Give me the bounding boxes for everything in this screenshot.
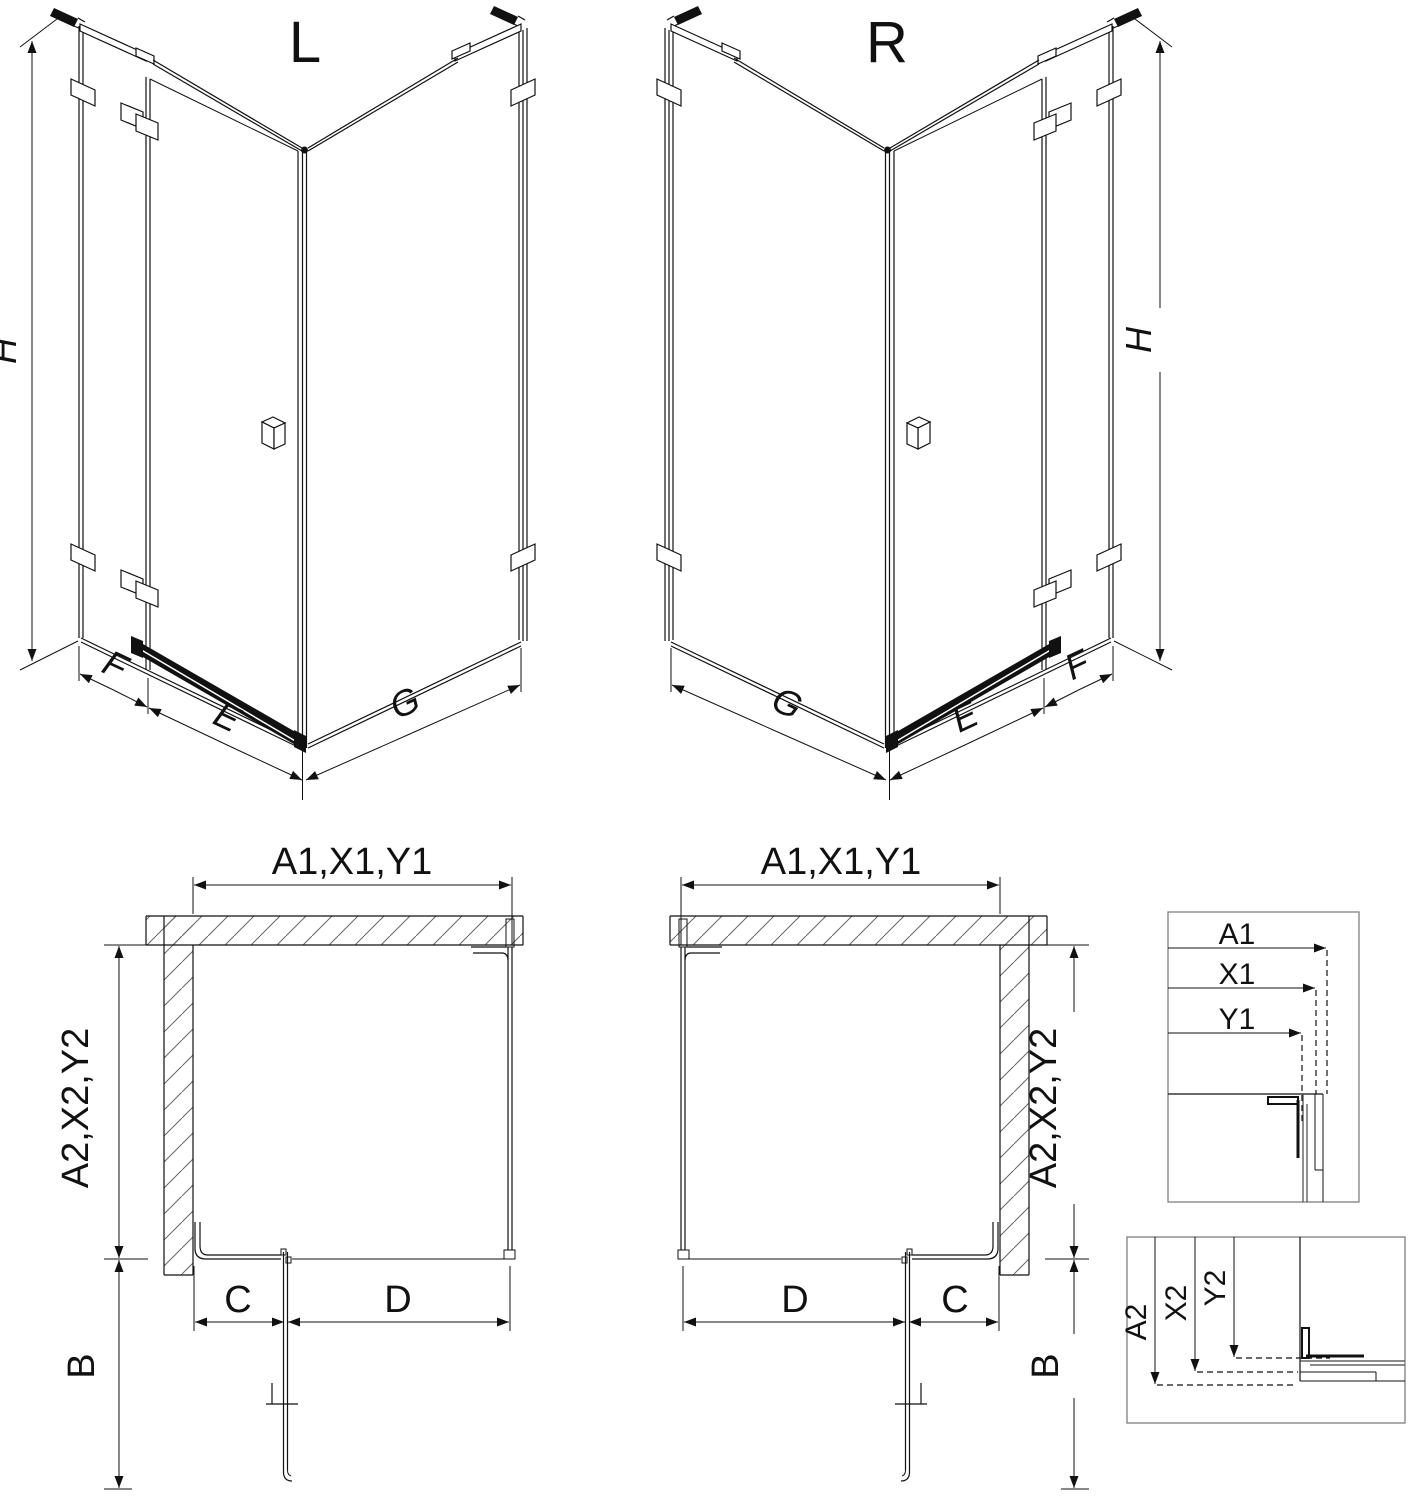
iso-right-h-label: H bbox=[1118, 326, 1159, 353]
detail-depth-dims: A2 X2 Y2 bbox=[1120, 1237, 1405, 1423]
detail-a1-label: A1 bbox=[1219, 918, 1256, 951]
iso-right-g-label: G bbox=[766, 678, 809, 727]
plan-left-width-label: A1,X1,Y1 bbox=[272, 841, 433, 883]
plan-right-d-label: D bbox=[781, 1279, 808, 1321]
shower-enclosure-drawing: L H F E G R H G E F A1,X1,Y1 A2,X2,Y2 C … bbox=[0, 0, 1416, 1497]
detail-y1-label: Y1 bbox=[1219, 1003, 1256, 1036]
detail-width-profile bbox=[1168, 1094, 1323, 1202]
detail-depth-profile bbox=[1300, 1237, 1405, 1381]
detail-width-dims: A1 X1 Y1 bbox=[1168, 912, 1359, 1202]
iso-left-h-label: H bbox=[0, 337, 24, 364]
plan-left-d-label: D bbox=[384, 1279, 411, 1321]
wall-hatching bbox=[146, 916, 1047, 1275]
technical-drawing-page: L H F E G R H G E F A1,X1,Y1 A2,X2,Y2 C … bbox=[0, 0, 1416, 1497]
plan-right-depth-label: A2,X2,Y2 bbox=[1023, 1028, 1065, 1189]
detail-y2-label: Y2 bbox=[1199, 1270, 1232, 1307]
iso-right-title: R bbox=[866, 10, 908, 75]
plan-right-c-label: C bbox=[941, 1279, 968, 1321]
plan-right-width-label: A1,X1,Y1 bbox=[761, 841, 922, 883]
detail-x1-label: X1 bbox=[1219, 958, 1256, 991]
detail-x2-label: X2 bbox=[1160, 1285, 1193, 1322]
iso-left-e-label: E bbox=[208, 693, 248, 741]
detail-a2-label: A2 bbox=[1120, 1304, 1153, 1341]
plan-left-depth-label: A2,X2,Y2 bbox=[55, 1028, 97, 1189]
iso-right-labels: R H G E F bbox=[766, 10, 1168, 740]
iso-view-right bbox=[657, 6, 1172, 800]
iso-view-left bbox=[20, 6, 535, 800]
iso-left-labels: L H F E G bbox=[0, 10, 426, 741]
plan-right-b-label: B bbox=[1025, 1353, 1067, 1378]
iso-right-e-label: E bbox=[945, 693, 985, 741]
iso-left-title: L bbox=[289, 10, 321, 75]
plan-left-b-label: B bbox=[61, 1353, 103, 1378]
plan-left-c-label: C bbox=[224, 1279, 251, 1321]
iso-left-g-label: G bbox=[383, 678, 426, 727]
